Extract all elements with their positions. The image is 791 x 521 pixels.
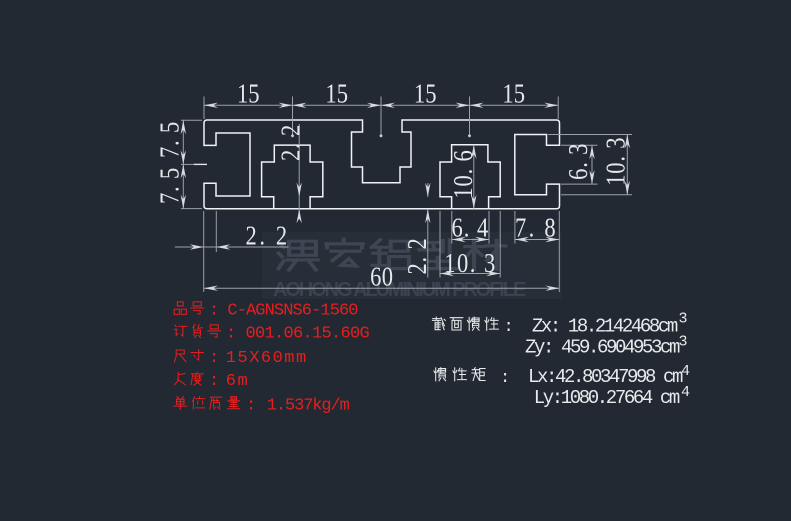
svg-text:10. 6: 10. 6: [449, 149, 479, 198]
svg-text::: :: [209, 372, 219, 391]
svg-text:6m: 6m: [226, 372, 249, 391]
svg-text::: :: [209, 302, 219, 321]
svg-text::: :: [500, 369, 510, 388]
svg-text:3: 3: [679, 334, 688, 351]
svg-text:15: 15: [502, 79, 525, 109]
svg-text:15: 15: [325, 79, 348, 109]
svg-text:15X60mm: 15X60mm: [226, 349, 308, 368]
svg-text:7. 8: 7. 8: [515, 213, 558, 243]
svg-text:Lx:42.80347998 cm: Lx:42.80347998 cm: [528, 366, 683, 388]
svg-text:2. 2: 2. 2: [245, 221, 289, 251]
svg-text:6. 4: 6. 4: [452, 213, 490, 243]
svg-text:10. 3: 10. 3: [602, 137, 632, 186]
svg-text:6. 3: 6. 3: [564, 143, 594, 180]
svg-text:Zx: 18.2142468cm: Zx: 18.2142468cm: [532, 316, 678, 338]
svg-text:10. 3: 10. 3: [444, 249, 496, 279]
svg-text::: :: [209, 349, 219, 368]
svg-text:60: 60: [370, 263, 393, 293]
svg-text:C-AGNSNS6-1560: C-AGNSNS6-1560: [227, 302, 358, 321]
svg-text:2. 2: 2. 2: [403, 237, 433, 274]
svg-text:AOHONG ALUMINIUM PROFILE: AOHONG ALUMINIUM PROFILE: [273, 279, 526, 301]
svg-text:2. 2: 2. 2: [277, 124, 307, 161]
svg-text:4: 4: [681, 363, 690, 380]
svg-text:Ly:1080.27664 cm: Ly:1080.27664 cm: [534, 387, 680, 409]
svg-text:3: 3: [679, 311, 688, 328]
svg-text:7. 5: 7. 5: [156, 121, 186, 158]
svg-text:001.06.15.60G: 001.06.15.60G: [246, 325, 370, 344]
svg-text:15: 15: [237, 79, 260, 109]
svg-text:1.537kg/m: 1.537kg/m: [267, 397, 350, 416]
svg-text:4: 4: [681, 384, 690, 401]
svg-text:7. 5: 7. 5: [156, 167, 186, 204]
svg-text:15: 15: [414, 79, 437, 109]
svg-text::: :: [504, 318, 514, 337]
svg-text::: :: [246, 397, 256, 416]
svg-text::: :: [226, 325, 236, 344]
svg-text:Zy: 459.6904953cm: Zy: 459.6904953cm: [525, 337, 680, 359]
